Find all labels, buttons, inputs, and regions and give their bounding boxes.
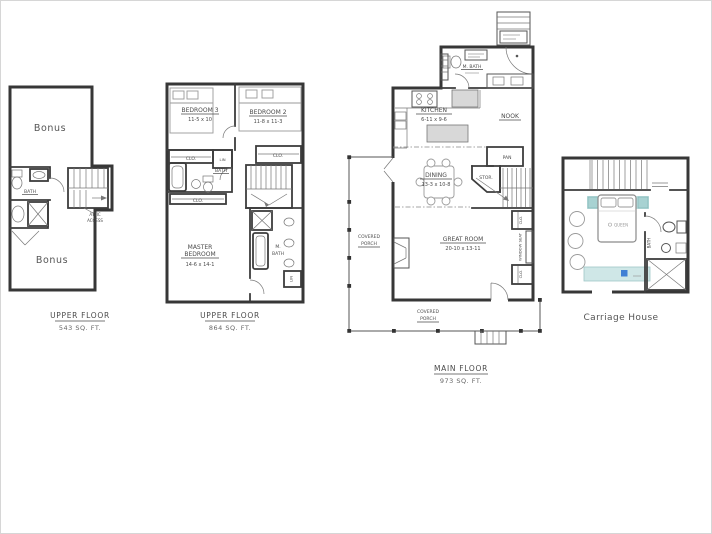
door-swing (455, 74, 469, 88)
plan-area: 543 SQ. FT. (59, 324, 101, 332)
vanity-counter (487, 74, 533, 88)
chase-box (28, 202, 48, 226)
master-label-2: BEDROOM (184, 251, 215, 258)
bar-sink-icon (621, 270, 628, 277)
door-swing (645, 216, 661, 232)
bath: BATH (645, 213, 686, 292)
corner-shower (506, 47, 533, 74)
covered-stoop (497, 12, 530, 45)
pillow-icon (618, 198, 633, 207)
sink-icon (284, 218, 294, 226)
bar-counter (584, 267, 650, 281)
storage-label: STOR. (479, 175, 493, 181)
floorplan-sheet: Bonus Bonus BATH ATTIC ACCESS UPPER FLOO… (0, 0, 712, 534)
great-room-dim: 20-10 x 13-11 (445, 246, 480, 252)
room-label-bath: BATH (24, 189, 36, 195)
pillow-icon (601, 198, 616, 207)
porch-side-label-1: COVERED (358, 234, 380, 240)
kitchen-island (427, 125, 468, 142)
bed-area: QUEEN (587, 195, 649, 242)
floorplan-drawing: Bonus Bonus BATH ATTIC ACCESS UPPER FLOO… (0, 0, 712, 534)
plan-title: MAIN FLOOR (434, 364, 488, 373)
master-dim: 14-6 x 14-1 (186, 262, 215, 268)
attic-access-label-1: ATTIC (89, 212, 100, 217)
sink-icon (395, 112, 406, 120)
chair-icon (568, 234, 583, 249)
kitchen-label: KITCHEN (421, 107, 447, 114)
closet-top-label: CLO. (518, 216, 523, 225)
attic-access-label-2: ACCESS (87, 218, 103, 223)
stairs (68, 168, 108, 213)
window-seat-label: WINDOW SEAT (518, 232, 523, 261)
bath-label: BATH (215, 168, 227, 174)
dining-label: DINING (425, 172, 447, 179)
toilet-icon (451, 56, 461, 68)
stair-arrow-head (101, 196, 107, 201)
toilet-icon (12, 177, 22, 189)
stair-arrow-head (503, 196, 509, 202)
sink-icon (662, 244, 671, 253)
toilet-icon (204, 182, 213, 192)
mbath-label-1: M. (275, 244, 280, 250)
entry-door-opening (592, 289, 612, 295)
toilet-icon (663, 222, 675, 232)
shower-box (647, 259, 686, 290)
pantry-label: PAN (503, 155, 512, 161)
tub-icon (253, 233, 268, 269)
toilet-tank (677, 221, 686, 233)
sink-icon (395, 121, 406, 129)
door-swing (223, 126, 235, 138)
plan-area: 973 SQ. FT. (440, 377, 482, 385)
toilet-icon (284, 259, 294, 267)
linen-label: LIN (219, 157, 225, 162)
stairs (246, 165, 292, 208)
nightstand (638, 197, 648, 208)
plan-title: UPPER FLOOR (50, 311, 110, 320)
laundry-sink-icon (12, 206, 24, 222)
great-room-label: GREAT ROOM (443, 236, 484, 243)
porch-bottom-label-1: COVERED (417, 309, 439, 315)
tub-icon (169, 163, 186, 191)
kitchen-dim: 6-11 x 9-6 (421, 117, 447, 123)
bath-label: BATH (647, 238, 652, 249)
stairs (590, 160, 668, 189)
toilet-tank (203, 176, 213, 182)
main-bath-label: M. BATH (463, 64, 482, 70)
chair-icon (570, 255, 585, 270)
chairs (568, 212, 585, 270)
toilet-tank (12, 170, 22, 177)
bath-fixtures (12, 169, 64, 245)
plan-upper-floor-large: BEDROOM 3 11-5 x 10 BEDROOM 2 11-8 x 11-… (167, 84, 303, 332)
master-label-1: MASTER (188, 244, 213, 251)
plan-carriage-house: QUEEN BATH Carriage House (563, 158, 688, 323)
plan-area: 864 SQ. FT. (209, 324, 251, 332)
mbath-linen-label: LIN (289, 276, 294, 282)
room-label-bonus-top: Bonus (34, 123, 66, 134)
room-label-bonus-bottom: Bonus (36, 255, 68, 266)
door-swing (50, 178, 64, 192)
porch-side-label-2: PORCH (361, 241, 377, 247)
shower-box (252, 211, 272, 230)
media-center (394, 238, 409, 268)
dining-dim: 13-3 x 10-8 (422, 182, 451, 188)
porch-steps (475, 331, 506, 344)
plan-title: Carriage House (584, 313, 659, 323)
room-dim-bedroom2: 11-8 x 11-3 (254, 119, 283, 125)
mbath-label-2: BATH (272, 251, 284, 257)
master-closet-label: CLO. (193, 198, 203, 204)
bed-label: QUEEN (614, 223, 628, 228)
closet-left-label: CLO. (186, 156, 196, 162)
chair-icon (570, 212, 585, 227)
sink-icon (493, 77, 504, 85)
note-box (465, 50, 487, 60)
plan-main-floor: M. BATH KITCHEN 6-11 x 9-6 NOOK PAN (347, 12, 542, 385)
main-bath-fixtures (441, 47, 533, 88)
room-dim-bedroom3: 11-5 x 10 (188, 117, 212, 123)
plan-upper-floor-small: Bonus Bonus BATH ATTIC ACCESS UPPER FLOO… (10, 87, 112, 332)
closet-bottom-label: CLO. (518, 270, 523, 279)
room-label-bedroom2: BEDROOM 2 (249, 109, 286, 116)
sink-icon (284, 239, 294, 247)
room-label-bedroom3: BEDROOM 3 (181, 107, 218, 114)
fridge-icon (452, 90, 478, 107)
porch-bottom-label-2: PORCH (420, 316, 436, 322)
double-door (12, 231, 39, 245)
sink-icon (511, 77, 523, 85)
sink-icon (192, 180, 201, 189)
closet-right-label: CLO. (273, 153, 283, 159)
sink-icon (33, 172, 45, 179)
stove-icon (412, 91, 437, 107)
door-swing (250, 280, 264, 294)
nook-label: NOOK (501, 113, 520, 120)
plan-title: UPPER FLOOR (200, 311, 260, 320)
nightstand (588, 197, 598, 208)
